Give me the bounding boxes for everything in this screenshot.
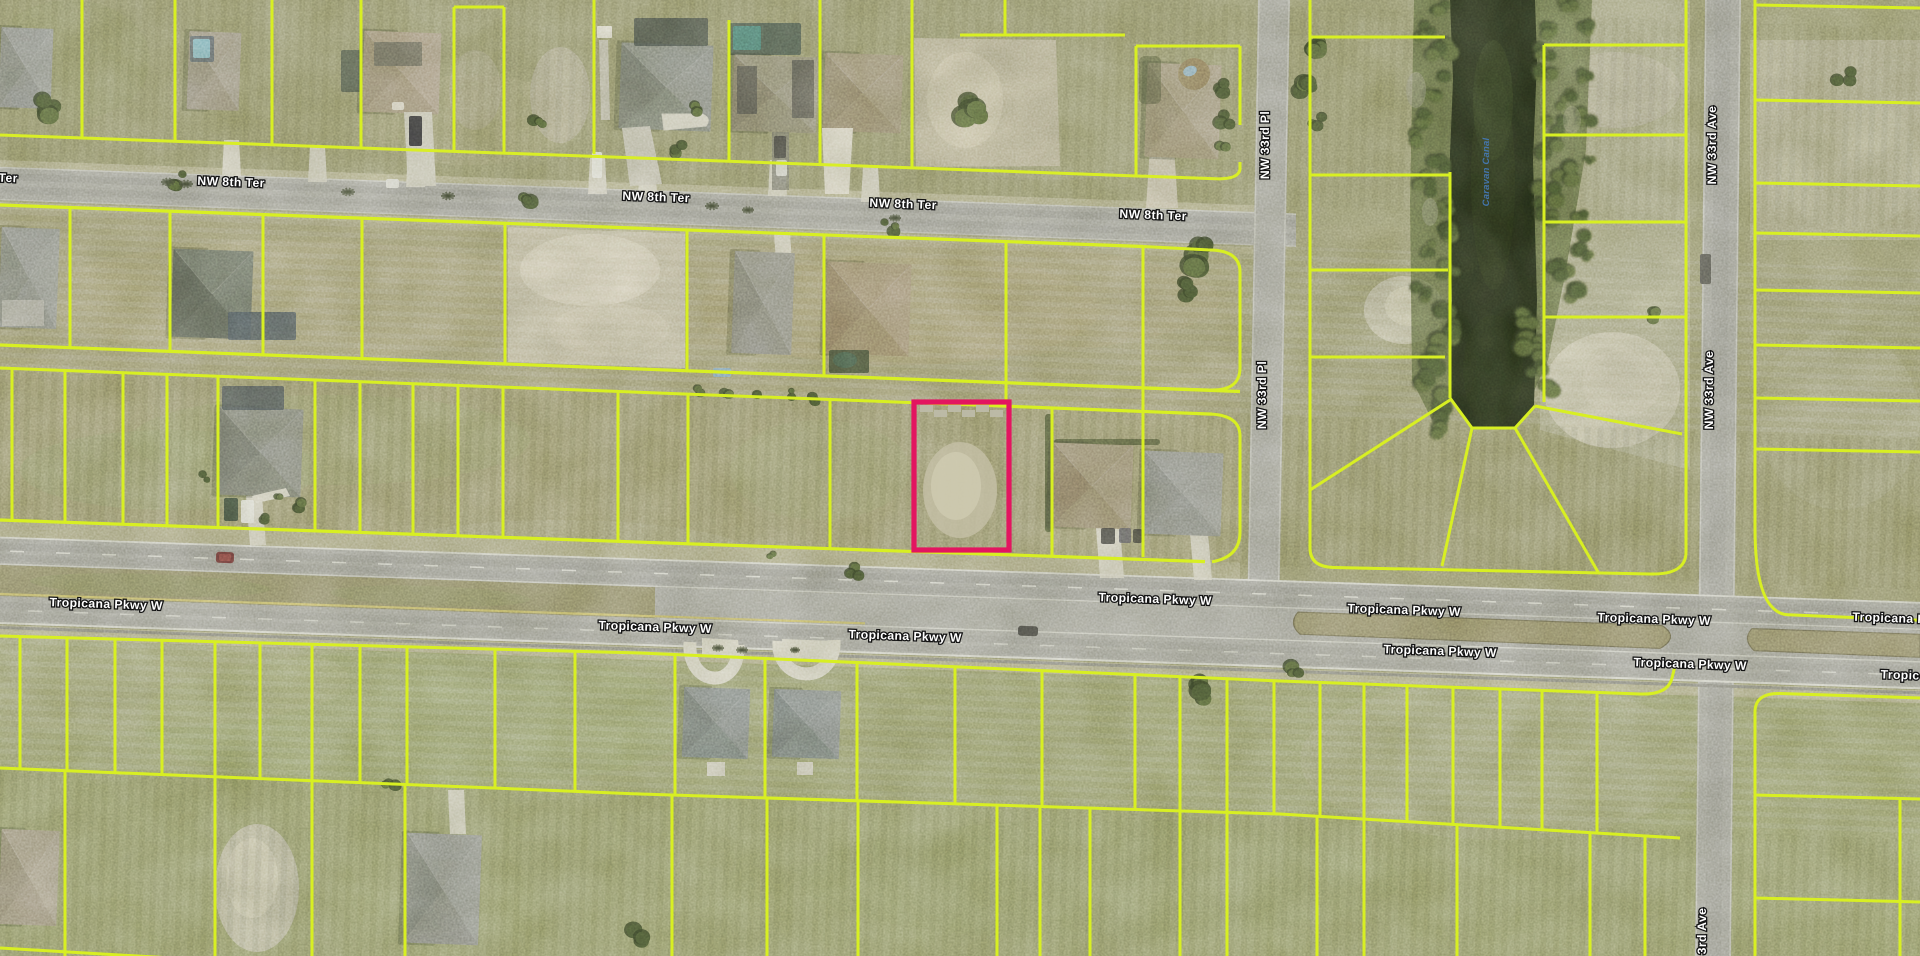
svg-text:NW 8th Ter: NW 8th Ter xyxy=(869,196,937,212)
svg-text:NW 8th Ter: NW 8th Ter xyxy=(622,189,690,205)
svg-text:NW 33rd Pl: NW 33rd Pl xyxy=(1255,361,1269,429)
svg-text:NW 33rd Pl: NW 33rd Pl xyxy=(1258,111,1272,179)
svg-text:Tropic: Tropic xyxy=(1880,667,1919,682)
svg-text:3rd Ave: 3rd Ave xyxy=(1695,908,1709,955)
svg-text:Tropicana P: Tropicana P xyxy=(1852,610,1920,626)
svg-text:Ter: Ter xyxy=(0,171,18,186)
svg-text:Caravan Canal: Caravan Canal xyxy=(1481,138,1492,207)
svg-text:NW 33rd Ave: NW 33rd Ave xyxy=(1705,106,1719,185)
svg-text:NW 8th Ter: NW 8th Ter xyxy=(1119,207,1187,223)
svg-text:NW 33rd Ave: NW 33rd Ave xyxy=(1702,351,1716,430)
svg-text:NW 8th Ter: NW 8th Ter xyxy=(197,174,265,190)
